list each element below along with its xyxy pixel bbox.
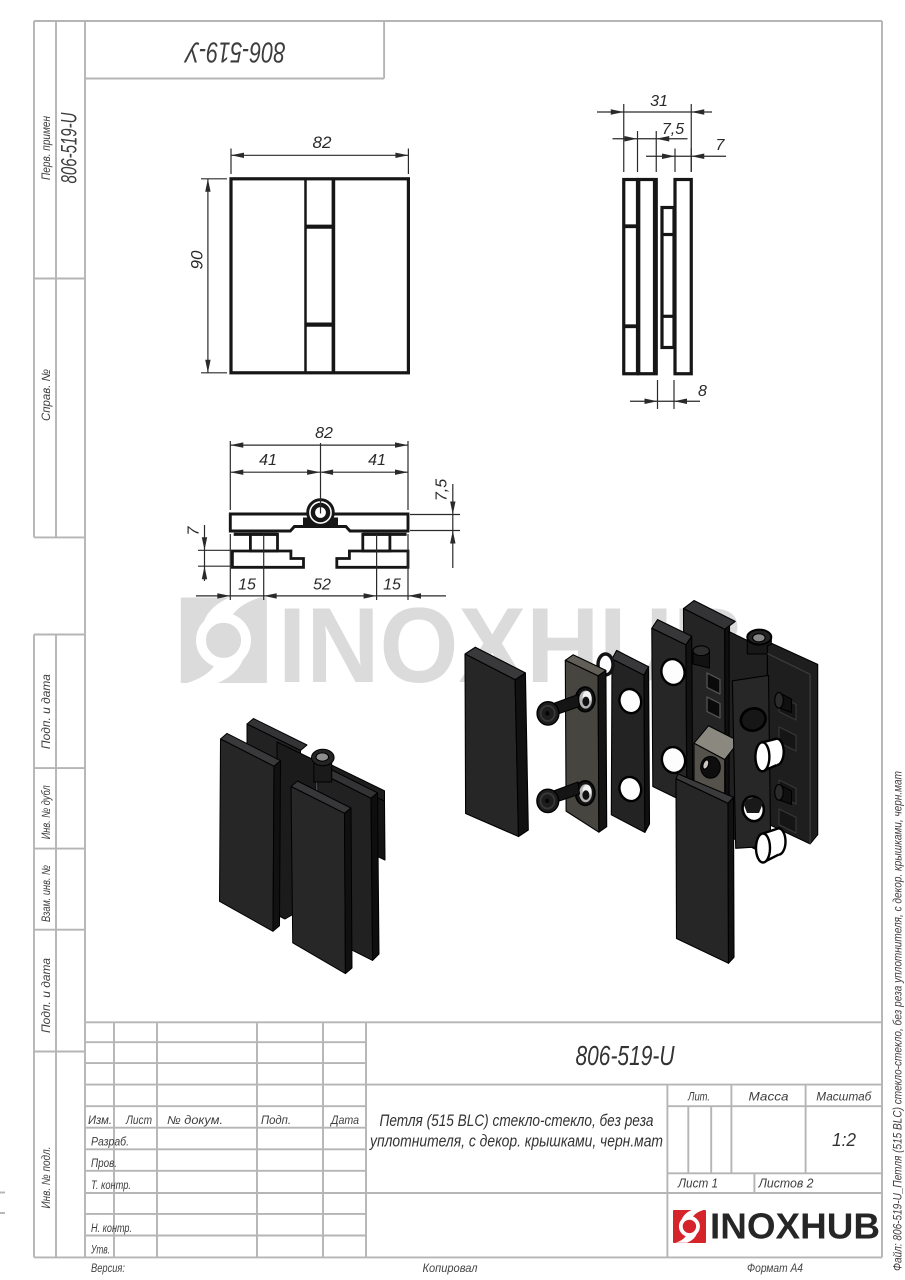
svg-text:Файл: 806-519-U_Петля (515 BLC: Файл: 806-519-U_Петля (515 BLC) стекло-с… bbox=[893, 771, 905, 1271]
svg-text:15: 15 bbox=[238, 577, 256, 594]
svg-text:№ докум.: № докум. bbox=[167, 1115, 223, 1127]
svg-text:7,5: 7,5 bbox=[662, 121, 684, 138]
svg-text:806-519-U: 806-519-U bbox=[57, 112, 82, 183]
svg-text:1:2: 1:2 bbox=[832, 1130, 856, 1150]
svg-text:INOXHUB: INOXHUB bbox=[710, 1206, 880, 1247]
svg-text:Масштаб: Масштаб bbox=[816, 1090, 872, 1104]
svg-text:Н. контр.: Н. контр. bbox=[91, 1223, 132, 1235]
svg-text:Инв. № дубл: Инв. № дубл bbox=[39, 785, 53, 839]
svg-text:Инв. № подл.: Инв. № подл. bbox=[39, 1147, 53, 1209]
svg-text:Т. контр.: Т. контр. bbox=[91, 1180, 131, 1192]
svg-text:Разраб.: Разраб. bbox=[91, 1137, 129, 1149]
svg-text:Подп. и дата: Подп. и дата bbox=[39, 958, 53, 1033]
svg-text:Подп. и дата: Подп. и дата bbox=[39, 674, 53, 749]
svg-text:Версия:: Версия: bbox=[91, 1263, 125, 1275]
svg-text:806-519-У: 806-519-У bbox=[184, 36, 286, 68]
svg-text:52: 52 bbox=[313, 577, 331, 594]
svg-text:31: 31 bbox=[650, 93, 668, 110]
svg-text:82: 82 bbox=[313, 133, 332, 152]
svg-text:806-519-U: 806-519-U bbox=[576, 1040, 676, 1071]
svg-text:Лист 1: Лист 1 bbox=[677, 1177, 718, 1191]
svg-text:Копировал: Копировал bbox=[423, 1263, 478, 1275]
svg-text:Подп.: Подп. bbox=[261, 1115, 291, 1127]
svg-text:Масса: Масса bbox=[749, 1090, 789, 1104]
svg-text:7: 7 bbox=[186, 525, 203, 535]
svg-text:82: 82 bbox=[315, 425, 333, 442]
svg-text:Петля (515 BLC) стекло-стекло,: Петля (515 BLC) стекло-стекло, без реза bbox=[380, 1111, 654, 1130]
svg-text:7: 7 bbox=[716, 137, 726, 154]
svg-text:41: 41 bbox=[368, 452, 386, 469]
svg-text:Лит.: Лит. bbox=[687, 1090, 710, 1104]
svg-text:90: 90 bbox=[188, 250, 207, 269]
svg-text:уплотнителя, с декор. крышками: уплотнителя, с декор. крышками, черн.мат bbox=[369, 1132, 663, 1151]
svg-text:Справ. №: Справ. № bbox=[39, 369, 53, 421]
svg-text:7,5: 7,5 bbox=[434, 479, 451, 501]
svg-text:41: 41 bbox=[259, 452, 277, 469]
svg-text:Пров.: Пров. bbox=[91, 1158, 117, 1170]
svg-text:Дата: Дата bbox=[329, 1115, 359, 1127]
svg-text:Формат А4: Формат А4 bbox=[747, 1263, 803, 1275]
svg-text:8: 8 bbox=[698, 383, 707, 400]
svg-text:Перв. примен: Перв. примен bbox=[39, 116, 53, 180]
svg-text:15: 15 bbox=[383, 577, 401, 594]
svg-text:Утв.: Утв. bbox=[90, 1245, 110, 1257]
svg-text:Листов 2: Листов 2 bbox=[758, 1177, 814, 1191]
svg-text:Лист: Лист bbox=[125, 1115, 152, 1127]
svg-text:Изм.: Изм. bbox=[88, 1115, 112, 1127]
svg-text:Взам. инв. №: Взам. инв. № bbox=[39, 865, 53, 922]
